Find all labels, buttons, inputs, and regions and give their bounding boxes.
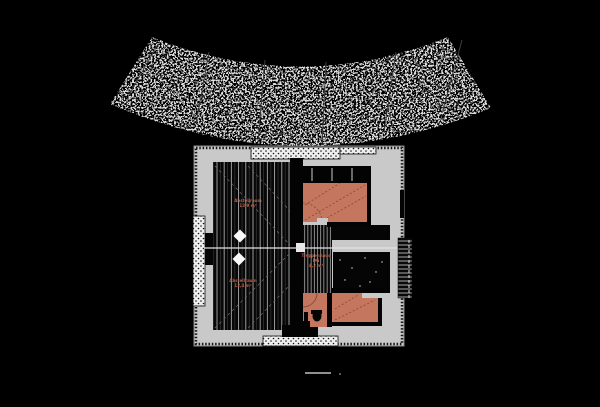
scale-bar (305, 372, 341, 375)
room-top-right (303, 183, 367, 222)
mid-right-upper-wall (332, 225, 390, 240)
top-right-room-upper-wall (303, 166, 371, 183)
room-left-plank-floor (213, 162, 297, 330)
bottom-right-room-bottom-wall (332, 322, 382, 326)
right-wall-window (400, 190, 404, 218)
stairwell-label: Treppenhaus DG 4,2 m² (297, 254, 335, 268)
terrain-speckle-area (110, 37, 491, 146)
room-left-bottom-label: Abstellraum 12,4 m² (223, 279, 263, 289)
toilet-tank (311, 310, 322, 314)
room-mid-right-dark (333, 252, 390, 290)
bottom-wall-hatch-strip (263, 336, 338, 346)
right-ladder-protrusion (398, 238, 412, 298)
room-left-top-label-area: 13,9 m² (228, 204, 268, 209)
room-left-bottom-label-area: 12,4 m² (223, 284, 263, 289)
wc-corner-block (303, 321, 310, 327)
wc-fixture (304, 312, 308, 321)
plan-drawing (0, 0, 600, 407)
stairwell-label-area: 4,2 m² (297, 264, 335, 269)
left-wall-opening (205, 233, 214, 265)
top-wall-hatch-strip (251, 147, 340, 159)
terrain-band (110, 37, 491, 146)
top-right-room-right-wall (367, 183, 371, 222)
left-wall-hatch-strip (193, 216, 205, 306)
site-plan-canvas: Abstellraum 13,9 m² Abstellraum 12,4 m² … (0, 0, 600, 407)
wc-right-wall (327, 293, 332, 327)
door-threshold (317, 218, 328, 224)
top-wall-hatch-strip-small (340, 147, 376, 154)
building (193, 146, 412, 346)
mid-room-divider-wall (332, 288, 390, 293)
room-left-top-label: Abstellraum 13,9 m² (228, 199, 268, 209)
bottom-right-room-right-wall (378, 298, 382, 322)
